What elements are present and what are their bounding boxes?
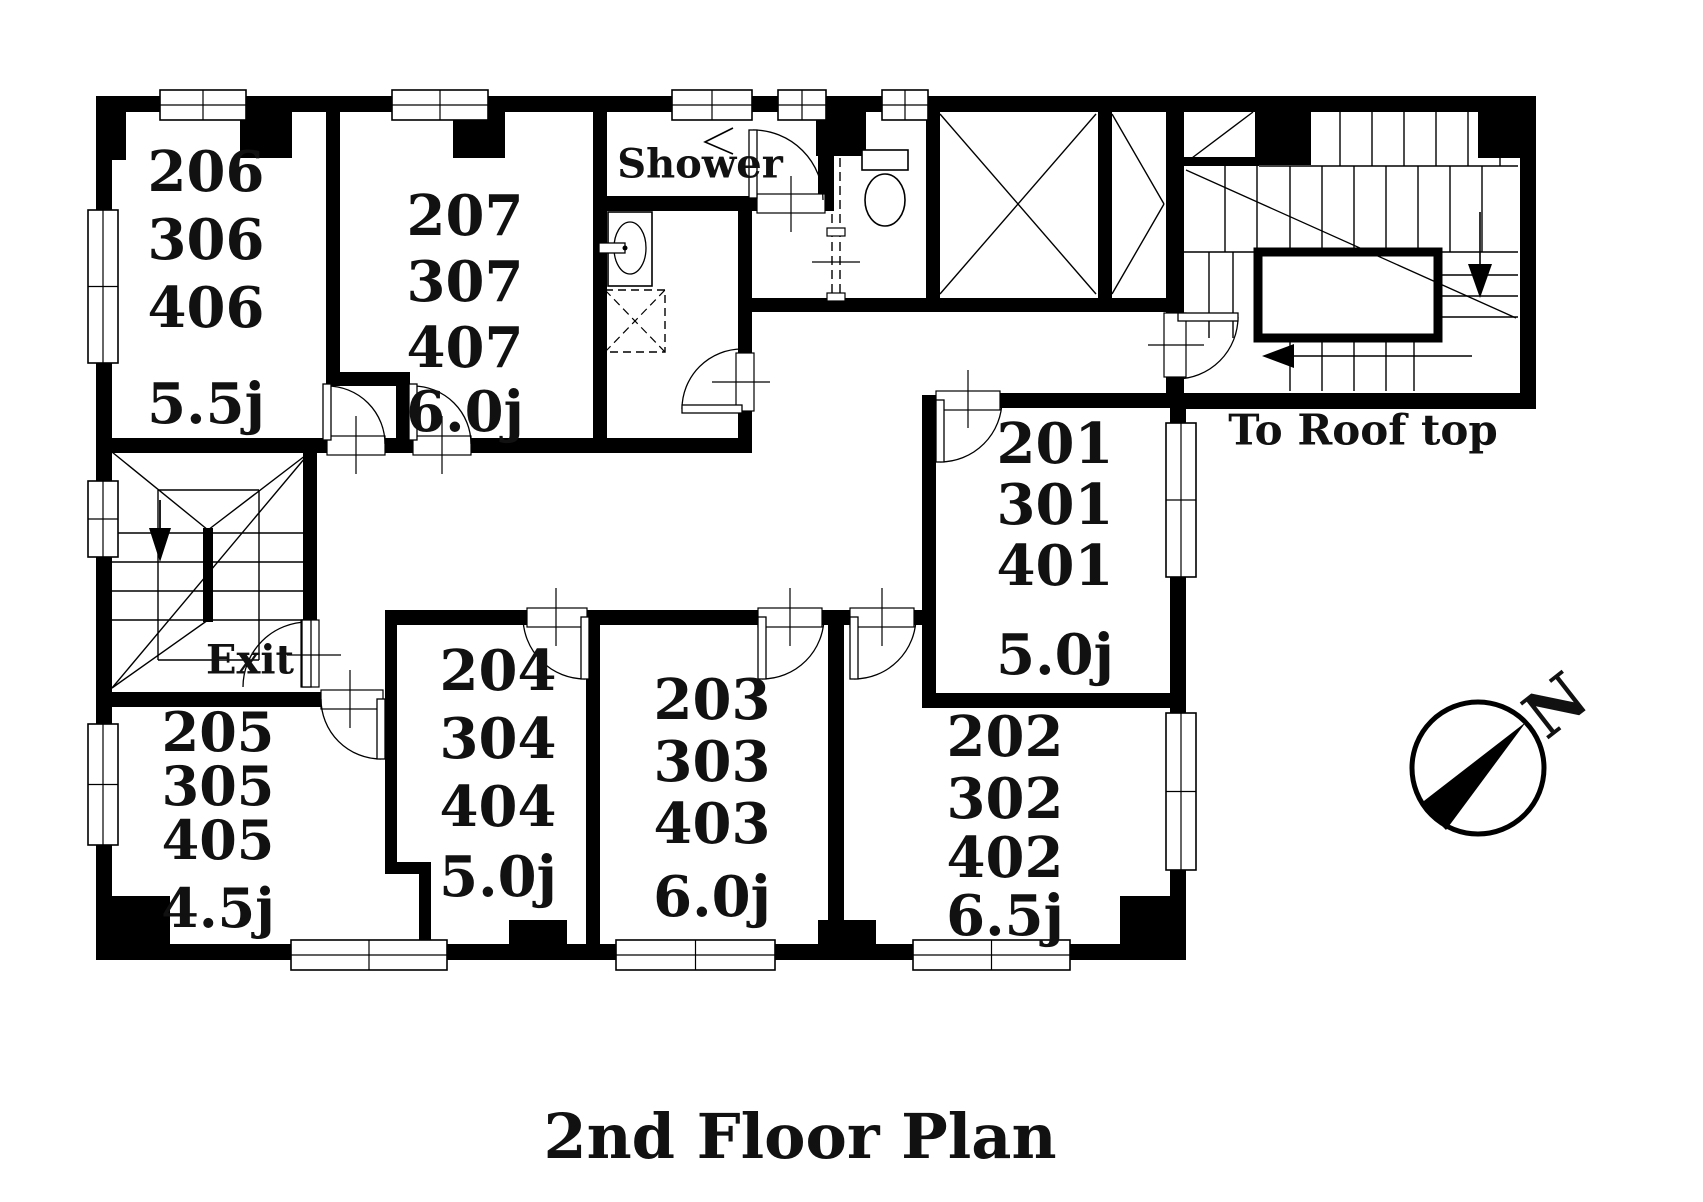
- room-203-number-203: 203: [654, 667, 771, 733]
- room-202-number-402: 402: [947, 825, 1064, 891]
- wall: [96, 438, 327, 453]
- room-207-number-207: 207: [407, 183, 524, 249]
- toilet-icon: [862, 150, 908, 226]
- door-202: [850, 588, 916, 679]
- laundry-pan-icon: [605, 290, 665, 352]
- room-204-number-204: 204: [440, 638, 557, 704]
- wall: [922, 395, 936, 695]
- room-202-number-302: 302: [947, 766, 1064, 832]
- pillar: [1478, 96, 1536, 158]
- room-204-number-404: 404: [440, 774, 557, 840]
- window: [1166, 423, 1196, 577]
- floor-plan-page: 2063064065.5j2073074076.0j2013014015.0j2…: [0, 0, 1703, 1202]
- exit-stair-divider: [203, 528, 213, 622]
- door-206: [323, 384, 385, 474]
- compass-needle: [1420, 722, 1526, 830]
- room-201-number-301: 301: [997, 472, 1114, 538]
- room-204-area-size: 5.0j: [439, 844, 557, 910]
- pillar: [96, 896, 170, 944]
- wall: [326, 110, 340, 378]
- room-203-area-size: 6.0j: [653, 864, 771, 930]
- plan-title: 2nd Floor Plan: [0, 1100, 1600, 1173]
- room-202-labels: 2023024026.5j: [946, 704, 1064, 949]
- door-203: [758, 588, 824, 679]
- room-204-number-304: 304: [440, 706, 557, 772]
- door-washroom: [682, 349, 770, 413]
- wall: [593, 110, 607, 453]
- room-203-number-303: 303: [654, 729, 771, 795]
- pillar: [1120, 896, 1186, 944]
- wall: [738, 409, 752, 453]
- wall: [1166, 110, 1184, 315]
- window: [778, 90, 826, 120]
- wall: [385, 610, 397, 868]
- window: [160, 90, 246, 120]
- room-207-labels: 2073074076.0j: [406, 183, 524, 445]
- wall: [828, 610, 844, 946]
- room-206-number-306: 306: [148, 207, 265, 273]
- floor-plan-drawing: 2063064065.5j2073074076.0j2013014015.0j2…: [0, 0, 1703, 1060]
- wall: [1184, 157, 1259, 166]
- pillar: [509, 920, 567, 944]
- shower-label: Shower: [617, 141, 784, 188]
- wall: [593, 196, 759, 211]
- room-201-area-size: 5.0j: [996, 622, 1114, 688]
- wall: [1000, 393, 1172, 408]
- exit-label: Exit: [206, 637, 295, 684]
- room-205-area-size: 4.5j: [161, 876, 274, 940]
- wall: [738, 211, 752, 357]
- walls: [96, 96, 1536, 960]
- room-207-number-407: 407: [407, 315, 524, 381]
- window: [616, 940, 775, 970]
- compass: N: [1412, 658, 1602, 834]
- room-206-labels: 2063064065.5j: [147, 139, 265, 437]
- wall: [419, 868, 431, 946]
- window: [392, 90, 488, 120]
- wall: [303, 446, 317, 620]
- window: [1166, 713, 1196, 870]
- pillar: [1255, 96, 1311, 165]
- wall: [593, 438, 750, 453]
- window: [882, 90, 928, 120]
- room-204-labels: 2043044045.0j: [439, 638, 557, 910]
- window: [672, 90, 752, 120]
- room-205-labels: 2053054054.5j: [161, 700, 274, 940]
- room-203-labels: 2033034036.0j: [653, 667, 771, 930]
- roof-top-label: To Roof top: [1228, 406, 1497, 455]
- roof-left-arrow: [1262, 344, 1472, 368]
- window: [88, 481, 118, 557]
- roof-down-arrow: [1468, 212, 1492, 298]
- wall: [1166, 377, 1184, 395]
- room-206-area-size: 5.5j: [147, 371, 265, 437]
- door-201: [936, 370, 1002, 462]
- room-202-number-202: 202: [947, 704, 1064, 770]
- room-201-number-201: 201: [997, 411, 1114, 477]
- door-205: [321, 670, 385, 759]
- window: [88, 210, 118, 363]
- exit-down-arrow: [149, 500, 171, 562]
- wall: [591, 610, 758, 625]
- wall: [385, 610, 527, 625]
- room-207-number-307: 307: [407, 249, 524, 315]
- room-202-area-size: 6.5j: [946, 883, 1064, 949]
- room-206-number-406: 406: [148, 275, 265, 341]
- pillar: [818, 920, 876, 944]
- wall: [926, 110, 940, 306]
- window: [88, 724, 118, 845]
- room-206-number-206: 206: [148, 139, 265, 205]
- pillar: [96, 96, 126, 160]
- window: [291, 940, 447, 970]
- room-205-number-405: 405: [162, 808, 275, 872]
- roof-stair-landing: [1258, 252, 1438, 338]
- room-207-area-size: 6.0j: [406, 379, 524, 445]
- door-roof-stair: [1148, 313, 1238, 379]
- compass-north-label: N: [1510, 658, 1602, 753]
- wall: [1098, 110, 1112, 306]
- room-201-number-401: 401: [997, 533, 1114, 599]
- room-203-number-403: 403: [654, 791, 771, 857]
- room-201-labels: 2013014015.0j: [996, 411, 1114, 688]
